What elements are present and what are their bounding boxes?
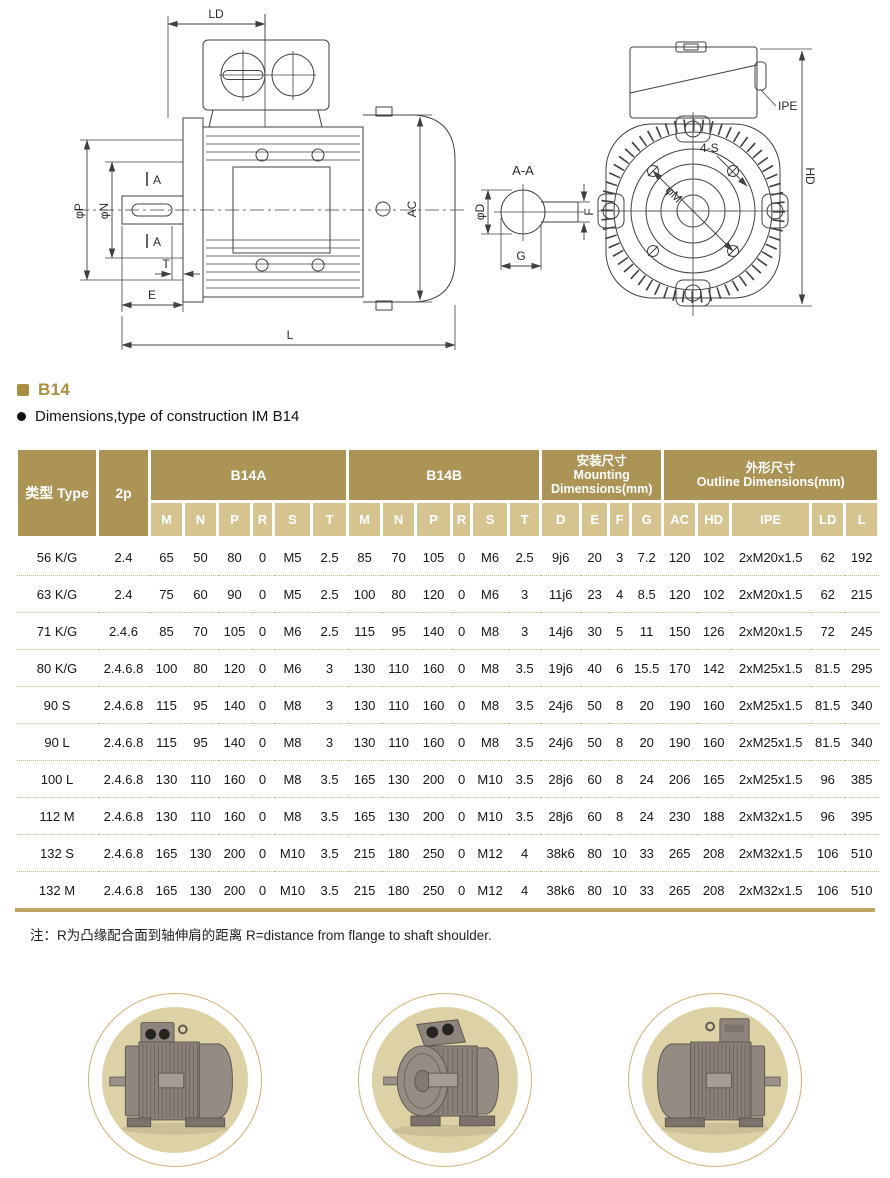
table-cell: 2xM32x1.5 — [731, 872, 811, 909]
table-cell: 265 — [663, 835, 697, 872]
table-cell: 106 — [811, 872, 845, 909]
subcol-m2: M — [348, 502, 382, 538]
table-cell: 96 — [811, 798, 845, 835]
table-cell: 180 — [382, 872, 416, 909]
table-cell: M8 — [274, 798, 312, 835]
table-cell: 8 — [609, 724, 631, 761]
table-cell: 5 — [609, 613, 631, 650]
table-cell: 200 — [416, 798, 452, 835]
motor-photo-medallion — [88, 993, 262, 1167]
table-cell: 11 — [631, 613, 663, 650]
group-header-mounting: 安装尺寸 Mounting Dimensions(mm) — [541, 449, 663, 502]
table-cell: 81.5 — [811, 687, 845, 724]
table-cell: 110 — [382, 687, 416, 724]
table-cell: 38k6 — [541, 835, 581, 872]
table-cell: 105 — [218, 613, 252, 650]
table-cell: 30 — [581, 613, 609, 650]
table-cell: 200 — [218, 835, 252, 872]
table-cell: 14j6 — [541, 613, 581, 650]
table-cell: 0 — [452, 724, 472, 761]
table-cell: 510 — [845, 835, 879, 872]
subcol-t1: T — [312, 502, 348, 538]
table-cell: M8 — [472, 613, 509, 650]
table-cell: 200 — [416, 761, 452, 798]
table-cell: 2.4 — [98, 538, 150, 576]
table-cell: 6 — [609, 650, 631, 687]
table-cell: 2xM20x1.5 — [731, 576, 811, 613]
table-cell: 3 — [312, 724, 348, 761]
table-cell: 150 — [663, 613, 697, 650]
table-row: 90 S2.4.6.8115951400M831301101600M83.524… — [17, 687, 879, 724]
subcol-ipe: IPE — [731, 502, 811, 538]
section-title-text: B14 — [38, 380, 70, 400]
table-cell: M8 — [472, 650, 509, 687]
table-cell: 165 — [697, 761, 731, 798]
table-cell: 4 — [509, 872, 541, 909]
table-cell: 71 K/G — [17, 613, 98, 650]
table-cell: 2xM25x1.5 — [731, 724, 811, 761]
col-header-type: 类型 Type — [17, 449, 98, 538]
table-cell: 63 K/G — [17, 576, 98, 613]
table-cell: 215 — [348, 835, 382, 872]
table-cell: 70 — [382, 538, 416, 576]
table-cell: 2xM32x1.5 — [731, 835, 811, 872]
table-cell: 112 M — [17, 798, 98, 835]
table-cell: 20 — [631, 687, 663, 724]
table-cell: 215 — [845, 576, 879, 613]
table-cell: 95 — [184, 724, 218, 761]
table-cell: 192 — [845, 538, 879, 576]
table-cell: 100 L — [17, 761, 98, 798]
table-cell: 50 — [184, 538, 218, 576]
table-cell: M12 — [472, 872, 509, 909]
technical-drawing: LD φP φN A A T E — [0, 0, 890, 370]
table-cell: 200 — [218, 872, 252, 909]
dim-label-ipe: IPE — [778, 99, 797, 113]
table-cell: 62 — [811, 576, 845, 613]
motor-photo-three-quarter — [372, 1007, 518, 1153]
group-header-b14a: B14A — [150, 449, 348, 502]
table-cell: 0 — [252, 798, 274, 835]
table-cell: 510 — [845, 872, 879, 909]
table-row: 63 K/G2.47560900M52.5100801200M6311j6234… — [17, 576, 879, 613]
table-cell: 180 — [382, 835, 416, 872]
table-row: 90 L2.4.6.8115951400M831301101600M83.524… — [17, 724, 879, 761]
table-cell: 165 — [150, 872, 184, 909]
table-cell: 230 — [663, 798, 697, 835]
table-cell: 0 — [452, 687, 472, 724]
dim-label-ld: LD — [208, 7, 224, 21]
table-cell: 3.5 — [509, 687, 541, 724]
table-cell: 102 — [697, 538, 731, 576]
table-cell: 8 — [609, 761, 631, 798]
subcol-r2: R — [452, 502, 472, 538]
table-cell: 250 — [416, 872, 452, 909]
table-cell: 90 — [218, 576, 252, 613]
table-cell: 11j6 — [541, 576, 581, 613]
table-cell: 0 — [452, 576, 472, 613]
table-cell: M6 — [274, 613, 312, 650]
table-cell: 56 K/G — [17, 538, 98, 576]
table-cell: 80 — [218, 538, 252, 576]
dim-label-phi-p: φP — [72, 203, 86, 219]
table-cell: M10 — [274, 835, 312, 872]
table-cell: 340 — [845, 687, 879, 724]
table-row: 56 K/G2.46550800M52.585701050M62.59j6203… — [17, 538, 879, 576]
table-cell: 2.5 — [312, 538, 348, 576]
table-cell: 10 — [609, 835, 631, 872]
table-cell: 40 — [581, 650, 609, 687]
list-bullet-icon — [17, 412, 26, 421]
dim-label-l: L — [287, 328, 294, 342]
table-row: 71 K/G2.4.685701050M62.5115951400M8314j6… — [17, 613, 879, 650]
table-cell: 0 — [252, 687, 274, 724]
section-mark-a-lower: A — [153, 235, 161, 249]
group-header-b14b: B14B — [348, 449, 541, 502]
table-cell: 10 — [609, 872, 631, 909]
table-cell: 130 — [150, 761, 184, 798]
table-cell: 38k6 — [541, 872, 581, 909]
table-cell: 3.5 — [509, 650, 541, 687]
dim-label-e: E — [148, 288, 156, 302]
table-cell: 160 — [416, 687, 452, 724]
table-cell: 3.5 — [312, 872, 348, 909]
table-cell: 206 — [663, 761, 697, 798]
table-cell: 96 — [811, 761, 845, 798]
table-cell: 24j6 — [541, 687, 581, 724]
table-cell: 165 — [348, 798, 382, 835]
dim-label-hd: HD — [803, 167, 817, 185]
table-cell: M5 — [274, 576, 312, 613]
table-cell: 81.5 — [811, 724, 845, 761]
table-cell: M10 — [274, 872, 312, 909]
table-cell: 140 — [218, 724, 252, 761]
table-row: 132 S2.4.6.81651302000M103.52151802500M1… — [17, 835, 879, 872]
table-cell: 9j6 — [541, 538, 581, 576]
table-cell: 165 — [348, 761, 382, 798]
subcol-n1: N — [184, 502, 218, 538]
table-cell: 60 — [581, 798, 609, 835]
mounting-header-en2: Dimensions(mm) — [542, 482, 661, 496]
table-cell: 72 — [811, 613, 845, 650]
table-cell: 60 — [184, 576, 218, 613]
subcol-ld: LD — [811, 502, 845, 538]
subcol-t2: T — [509, 502, 541, 538]
table-cell: 2.5 — [312, 576, 348, 613]
table-cell: 2.5 — [509, 538, 541, 576]
subcol-r1: R — [252, 502, 274, 538]
table-cell: 3.5 — [312, 835, 348, 872]
table-cell: 0 — [252, 576, 274, 613]
outline-header-en: Outline Dimensions(mm) — [664, 475, 877, 489]
table-cell: 132 M — [17, 872, 98, 909]
outline-header-zh: 外形尺寸 — [664, 461, 877, 475]
table-cell: 90 L — [17, 724, 98, 761]
table-cell: 120 — [218, 650, 252, 687]
table-cell: 110 — [382, 650, 416, 687]
dim-label-g: G — [516, 249, 525, 263]
table-cell: 340 — [845, 724, 879, 761]
table-cell: 33 — [631, 835, 663, 872]
shaft-section-drawing: A-A φD F G — [473, 163, 596, 270]
motor-photo-medallion — [358, 993, 532, 1167]
table-cell: 90 S — [17, 687, 98, 724]
table-cell: 2.4.6.8 — [98, 798, 150, 835]
section-title: A-A — [512, 163, 534, 178]
table-cell: 0 — [452, 650, 472, 687]
table-cell: 0 — [452, 798, 472, 835]
dimensions-table-wrap: 类型 Type 2p B14A B14B 安装尺寸 Mounting Dimen… — [15, 447, 875, 912]
table-cell: 65 — [150, 538, 184, 576]
table-cell: 85 — [348, 538, 382, 576]
table-cell: 0 — [252, 650, 274, 687]
table-cell: 130 — [184, 835, 218, 872]
table-cell: 75 — [150, 576, 184, 613]
table-row: 132 M2.4.6.81651302000M103.52151802500M1… — [17, 872, 879, 909]
table-cell: M8 — [472, 687, 509, 724]
table-cell: 160 — [218, 761, 252, 798]
table-cell: 2.4.6.8 — [98, 761, 150, 798]
table-cell: 24j6 — [541, 724, 581, 761]
subcol-n2: N — [382, 502, 416, 538]
table-cell: 15.5 — [631, 650, 663, 687]
table-cell: 140 — [218, 687, 252, 724]
table-cell: 80 — [184, 650, 218, 687]
description-text: Dimensions,type of construction IM B14 — [35, 408, 299, 425]
motor-illustration-left — [102, 1015, 248, 1145]
table-cell: M8 — [274, 687, 312, 724]
table-cell: 3 — [509, 576, 541, 613]
table-cell: 0 — [252, 538, 274, 576]
table-cell: 395 — [845, 798, 879, 835]
table-cell: M8 — [274, 724, 312, 761]
table-cell: 120 — [663, 538, 697, 576]
motor-photo-side-right — [642, 1007, 788, 1153]
table-cell: 3 — [312, 650, 348, 687]
table-cell: 130 — [348, 650, 382, 687]
table-cell: 115 — [150, 687, 184, 724]
table-cell: 0 — [452, 761, 472, 798]
table-cell: 80 K/G — [17, 650, 98, 687]
table-cell: 2xM20x1.5 — [731, 613, 811, 650]
table-footnote: 注：R为凸缘配合面到轴伸肩的距离 R=distance from flange … — [30, 924, 492, 944]
table-body: 56 K/G2.46550800M52.585701050M62.59j6203… — [17, 538, 879, 909]
section-heading: B14 — [17, 380, 70, 400]
mounting-header-en1: Mounting — [542, 468, 661, 482]
table-cell: 115 — [348, 613, 382, 650]
table-cell: 28j6 — [541, 798, 581, 835]
table-cell: 190 — [663, 687, 697, 724]
dim-label-phi-n: φN — [97, 203, 111, 219]
table-cell: 8 — [609, 687, 631, 724]
table-cell: 0 — [252, 724, 274, 761]
table-cell: 0 — [252, 872, 274, 909]
mounting-header-zh: 安装尺寸 — [542, 454, 661, 468]
table-cell: 0 — [452, 872, 472, 909]
table-cell: 130 — [348, 724, 382, 761]
table-cell: 2.4.6.8 — [98, 724, 150, 761]
motor-front-view-drawing: 4-S φM IPE HD — [598, 42, 817, 316]
subcol-p2: P — [416, 502, 452, 538]
table-cell: 132 S — [17, 835, 98, 872]
table-header-row-groups: 类型 Type 2p B14A B14B 安装尺寸 Mounting Dimen… — [17, 449, 879, 502]
table-cell: 50 — [581, 687, 609, 724]
table-cell: 215 — [348, 872, 382, 909]
table-cell: 2xM25x1.5 — [731, 687, 811, 724]
table-cell: 85 — [150, 613, 184, 650]
table-cell: 130 — [348, 687, 382, 724]
group-header-outline: 外形尺寸 Outline Dimensions(mm) — [663, 449, 879, 502]
table-cell: 100 — [150, 650, 184, 687]
table-cell: 130 — [150, 798, 184, 835]
table-cell: 24 — [631, 761, 663, 798]
table-cell: 20 — [631, 724, 663, 761]
section-bullet-icon — [17, 384, 29, 396]
motor-illustration-right — [642, 1015, 788, 1145]
table-cell: 0 — [452, 538, 472, 576]
table-cell: 245 — [845, 613, 879, 650]
table-cell: 23 — [581, 576, 609, 613]
table-cell: M10 — [472, 761, 509, 798]
subcol-hd: HD — [697, 502, 731, 538]
subcol-g: G — [631, 502, 663, 538]
dimensions-table: 类型 Type 2p B14A B14B 安装尺寸 Mounting Dimen… — [15, 447, 880, 908]
table-cell: 0 — [252, 835, 274, 872]
table-cell: 2.4.6.8 — [98, 650, 150, 687]
table-cell: 102 — [697, 576, 731, 613]
table-cell: 7.2 — [631, 538, 663, 576]
table-cell: 3.5 — [509, 798, 541, 835]
subcol-s2: S — [472, 502, 509, 538]
table-cell: 165 — [150, 835, 184, 872]
table-cell: 80 — [581, 835, 609, 872]
table-cell: 100 — [348, 576, 382, 613]
table-cell: M6 — [274, 650, 312, 687]
table-cell: 95 — [382, 613, 416, 650]
table-cell: 130 — [382, 761, 416, 798]
table-cell: 4 — [509, 835, 541, 872]
motor-illustration-front — [372, 1015, 518, 1145]
table-cell: 142 — [697, 650, 731, 687]
table-cell: M8 — [472, 724, 509, 761]
table-cell: 8.5 — [631, 576, 663, 613]
table-cell: 208 — [697, 835, 731, 872]
table-cell: 385 — [845, 761, 879, 798]
table-cell: 2.4.6.8 — [98, 872, 150, 909]
subcol-s1: S — [274, 502, 312, 538]
subcol-m1: M — [150, 502, 184, 538]
table-cell: 3 — [509, 613, 541, 650]
table-cell: 2.4.6 — [98, 613, 150, 650]
table-cell: M5 — [274, 538, 312, 576]
table-cell: 160 — [697, 687, 731, 724]
table-cell: 190 — [663, 724, 697, 761]
table-cell: 0 — [252, 761, 274, 798]
table-cell: 95 — [184, 687, 218, 724]
table-cell: 120 — [416, 576, 452, 613]
table-cell: 115 — [150, 724, 184, 761]
table-row: 100 L2.4.6.81301101600M83.51651302000M10… — [17, 761, 879, 798]
table-cell: 3.5 — [312, 798, 348, 835]
motor-side-view-drawing: LD φP φN A A T E — [72, 7, 465, 350]
dim-label-phi-d: φD — [473, 203, 487, 220]
table-cell: 250 — [416, 835, 452, 872]
motor-photo-side-left — [102, 1007, 248, 1153]
table-cell: M6 — [472, 538, 509, 576]
table-cell: 130 — [184, 872, 218, 909]
table-cell: 80 — [581, 872, 609, 909]
table-cell: 8 — [609, 798, 631, 835]
table-cell: 126 — [697, 613, 731, 650]
table-cell: 24 — [631, 798, 663, 835]
section-mark-a-upper: A — [153, 173, 161, 187]
table-cell: 0 — [452, 613, 472, 650]
table-cell: 60 — [581, 761, 609, 798]
table-cell: 110 — [382, 724, 416, 761]
table-cell: 2.4.6.8 — [98, 835, 150, 872]
table-cell: 81.5 — [811, 650, 845, 687]
table-cell: 3 — [609, 538, 631, 576]
subcol-ac: AC — [663, 502, 697, 538]
table-cell: 160 — [416, 650, 452, 687]
table-cell: 170 — [663, 650, 697, 687]
table-cell: 20 — [581, 538, 609, 576]
subcol-p1: P — [218, 502, 252, 538]
table-cell: 70 — [184, 613, 218, 650]
subcol-e: E — [581, 502, 609, 538]
table-row: 112 M2.4.6.81301101600M83.51651302000M10… — [17, 798, 879, 835]
motor-photo-medallion — [628, 993, 802, 1167]
table-cell: 120 — [663, 576, 697, 613]
dim-label-t: T — [162, 257, 170, 271]
subcol-l: L — [845, 502, 879, 538]
table-cell: 160 — [416, 724, 452, 761]
table-cell: 2xM25x1.5 — [731, 761, 811, 798]
table-cell: 2xM32x1.5 — [731, 798, 811, 835]
table-cell: M12 — [472, 835, 509, 872]
subcol-d: D — [541, 502, 581, 538]
table-cell: 19j6 — [541, 650, 581, 687]
table-cell: 160 — [697, 724, 731, 761]
table-cell: 2.4.6.8 — [98, 687, 150, 724]
table-row: 80 K/G2.4.6.8100801200M631301101600M83.5… — [17, 650, 879, 687]
table-cell: 140 — [416, 613, 452, 650]
table-cell: 28j6 — [541, 761, 581, 798]
table-cell: 3.5 — [509, 724, 541, 761]
table-cell: 3.5 — [509, 761, 541, 798]
dim-label-4s: 4-S — [700, 141, 719, 155]
table-cell: 3.5 — [312, 761, 348, 798]
dim-label-ac: AC — [405, 200, 419, 217]
table-cell: 2.4 — [98, 576, 150, 613]
table-cell: M10 — [472, 798, 509, 835]
table-cell: 2xM25x1.5 — [731, 650, 811, 687]
description-line: Dimensions,type of construction IM B14 — [17, 408, 299, 425]
table-cell: 208 — [697, 872, 731, 909]
dim-label-phi-m: φM — [663, 183, 685, 205]
catalog-page: LD φP φN A A T E — [0, 0, 890, 1178]
table-cell: 110 — [184, 761, 218, 798]
table-cell: 265 — [663, 872, 697, 909]
table-cell: 2.5 — [312, 613, 348, 650]
table-cell: M8 — [274, 761, 312, 798]
table-head: 类型 Type 2p B14A B14B 安装尺寸 Mounting Dimen… — [17, 449, 879, 538]
table-cell: M6 — [472, 576, 509, 613]
col-header-2p: 2p — [98, 449, 150, 538]
table-cell: 50 — [581, 724, 609, 761]
table-cell: 4 — [609, 576, 631, 613]
subcol-f: F — [609, 502, 631, 538]
